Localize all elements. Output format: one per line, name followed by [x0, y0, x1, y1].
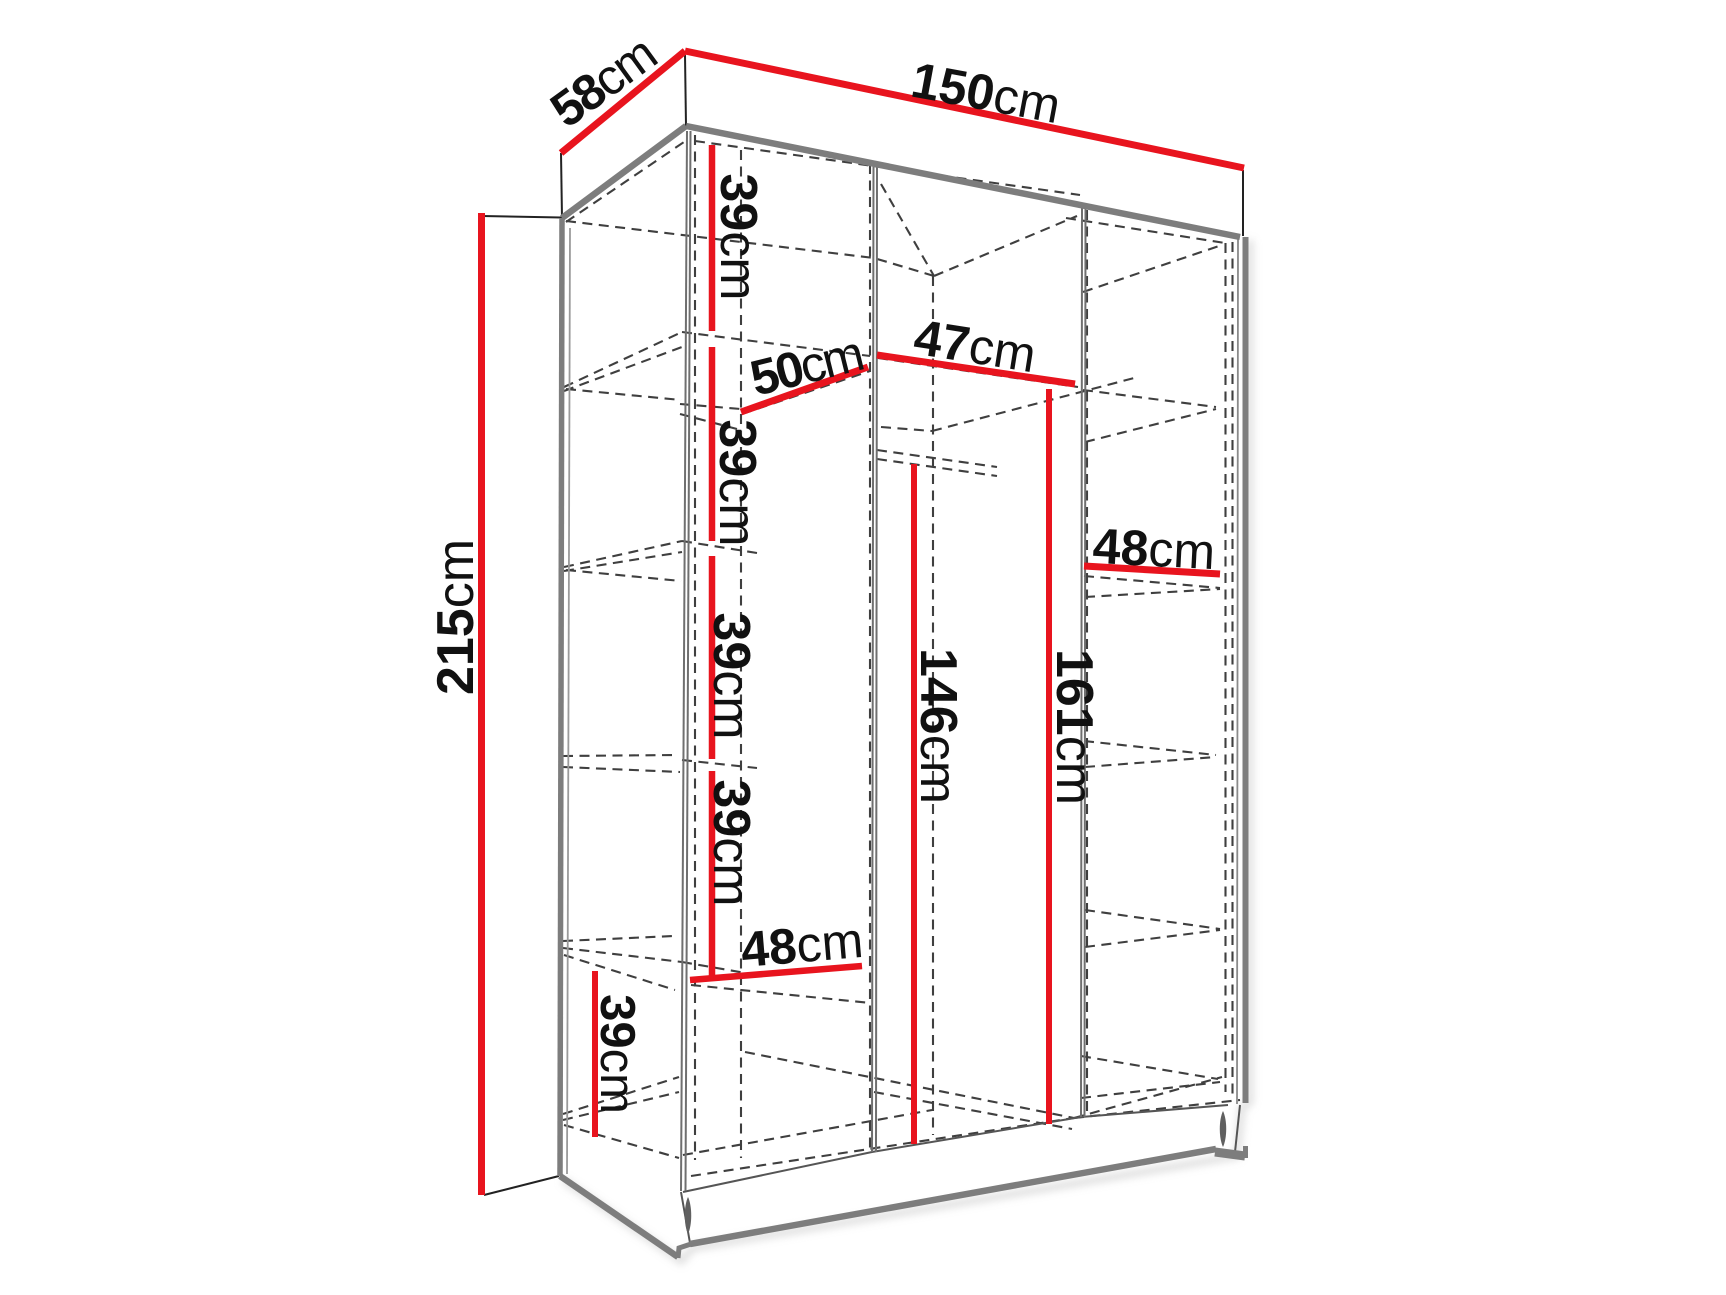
svg-text:48cm: 48cm — [1091, 518, 1216, 580]
svg-text:39cm: 39cm — [702, 612, 760, 739]
svg-text:39cm: 39cm — [708, 419, 766, 546]
svg-text:161cm: 161cm — [1045, 649, 1103, 805]
svg-text:146cm: 146cm — [909, 648, 967, 804]
svg-text:39cm: 39cm — [590, 994, 644, 1114]
svg-text:215cm: 215cm — [427, 539, 485, 695]
svg-text:39cm: 39cm — [702, 779, 760, 906]
svg-text:39cm: 39cm — [709, 173, 767, 300]
svg-text:48cm: 48cm — [739, 912, 866, 978]
